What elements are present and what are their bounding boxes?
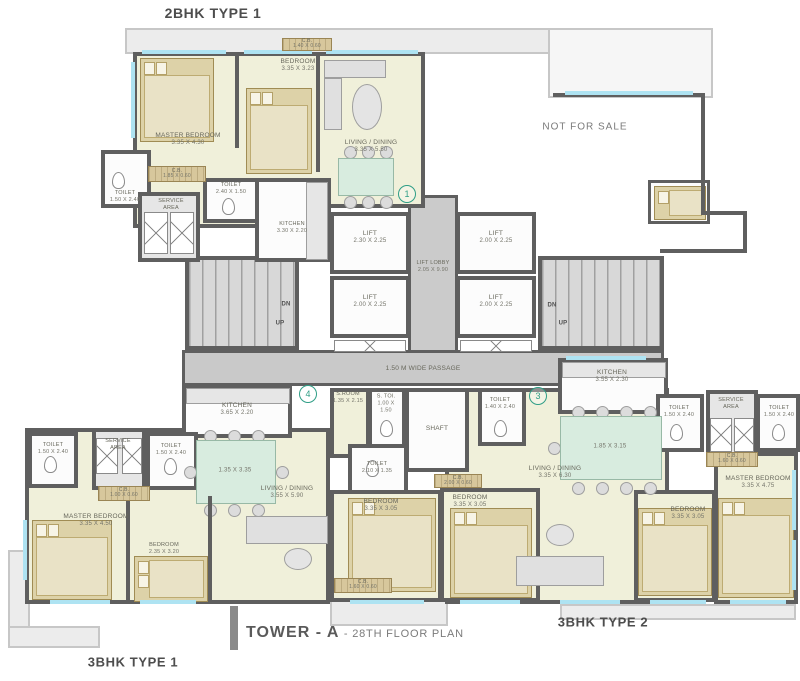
nfs-wall-bottom [660, 249, 745, 253]
sofa [246, 516, 328, 544]
staircase-right [538, 256, 664, 350]
label-u3-kitchen: KITCHEN3.55 X 2.30 [596, 369, 629, 385]
unit-title-3bhk-type1: 3BHK TYPE 1 [88, 655, 178, 670]
coffee-table [352, 84, 382, 130]
room-name: LIVING / DINING [345, 139, 397, 147]
room-name: SERVICE AREA [151, 198, 191, 212]
label-u4-bedroom1: BEDROOM2.35 X 3.20 [149, 542, 179, 556]
room-name: KITCHEN [597, 369, 627, 377]
stairs-direction: DN [547, 302, 556, 310]
room-name: TOILET [161, 443, 181, 450]
room-name: BEDROOM [671, 506, 706, 514]
room-dim: 3.35 X 3.05 [672, 514, 705, 522]
room-name: TOILET [669, 405, 689, 412]
unit-title-2bhk-type1: 2BHK TYPE 1 [165, 5, 262, 21]
label-shaft: SHAFT [426, 425, 448, 433]
plan-footer: TOWER - A - 28TH FLOOR PLAN [246, 624, 464, 642]
unit1-living-divider-wall [316, 52, 320, 172]
deck-not-for-sale [548, 28, 713, 98]
label-u4-toilet-mid: TOILET1.50 X 2.40 [156, 443, 186, 457]
room-dim: 3.35 X 3.05 [365, 506, 398, 514]
room-dim: 1.85 X 0.60 [163, 174, 191, 179]
room-name: LIFT [489, 294, 503, 302]
label-u1-cb-left: C.B.1.85 X 0.60 [163, 169, 191, 180]
room-dim: 1.50 X 2.40 [156, 450, 186, 457]
chair [344, 196, 357, 209]
chair [276, 466, 289, 479]
room-name: LIVING / DINING [529, 465, 581, 473]
unit-number-4: 4 [299, 385, 317, 403]
label-stairs-left-dn: DN [281, 301, 290, 309]
label-u3-cb-mid: C.B.2.00 X 0.60 [444, 476, 472, 487]
sofa [324, 78, 342, 130]
label-u4-living: LIVING / DINING3.55 X 5.90 [261, 485, 313, 501]
lift-pit-hatch-right [460, 340, 532, 352]
wardrobe [710, 418, 732, 452]
label-u1-master-bedroom: MASTER BEDROOM3.35 X 4.30 [155, 132, 220, 148]
room-name: LIFT [489, 230, 503, 238]
chair [228, 504, 241, 517]
room-dim: 3.55 X 2.30 [596, 377, 629, 385]
chair [596, 482, 609, 495]
room-dim: 1.00 X 0.60 [110, 493, 138, 498]
label-u3-living: LIVING / DINING3.35 X 6.30 [529, 465, 581, 481]
window [792, 540, 796, 590]
window [566, 356, 646, 360]
room-name: LIFT [363, 294, 377, 302]
label-stairs-right-up: UP [559, 320, 568, 328]
room-name: LIFT LOBBY [416, 260, 449, 267]
room-dim: 1.40 X 2.40 [485, 404, 515, 411]
footer-wall-stub [230, 606, 238, 650]
chair [380, 196, 393, 209]
label-u3-table-dim: 1.85 X 3.15 [594, 443, 627, 451]
sofa [324, 60, 386, 78]
room-name: BEDROOM [453, 494, 488, 502]
window [460, 600, 520, 604]
room-dim: 3.35 X 5.50 [355, 147, 388, 155]
toilet-wc [380, 420, 393, 437]
unit-title-3bhk-type2: 3BHK TYPE 2 [558, 615, 648, 630]
unit-number-3: 3 [529, 387, 547, 405]
wardrobe [144, 212, 168, 254]
room-name: TOILET [490, 397, 510, 404]
room-dim: 1.50 X 2.40 [764, 412, 794, 419]
window [350, 600, 424, 604]
label-u4-bedroom2: BEDROOM3.35 X 3.05 [364, 498, 399, 514]
window [792, 470, 796, 530]
label-u1-toilet-inner: TOILET2.40 X 1.50 [216, 182, 246, 196]
room-dim: 1.60 X 0.60 [349, 585, 377, 590]
bed [718, 498, 794, 598]
room-name: 1.50 M WIDE PASSAGE [386, 365, 461, 373]
room-dim: 1.00 X 1.50 [371, 401, 401, 415]
label-u1-toilet-left: TOILET1.50 X 2.40 [110, 190, 140, 204]
label-u4-kitchen: KITCHEN3.65 X 2.20 [221, 402, 254, 418]
room-dim: 3.35 X 4.75 [742, 483, 775, 491]
room-dim: 2.00 X 2.25 [354, 302, 387, 310]
label-u3-bedroom1: BEDROOM3.35 X 3.05 [453, 494, 488, 510]
label-u1-cb-top: C.B.1.40 X 0.60 [293, 39, 321, 50]
toilet-wc [44, 456, 57, 473]
stairs-direction: UP [276, 320, 285, 328]
toilet-wc [164, 458, 177, 475]
wardrobe [734, 418, 754, 452]
room-name: MASTER BEDROOM [155, 132, 220, 140]
window [326, 50, 418, 54]
room-name: TOILET [43, 442, 63, 449]
label-lift-tl: LIFT2.30 X 2.25 [354, 230, 387, 246]
bed [654, 186, 706, 220]
room-dim: 2.35 X 3.20 [149, 549, 179, 556]
window [560, 600, 620, 604]
room-name: KITCHEN [279, 221, 305, 228]
label-u4-service-area: SERVICE AREA [98, 438, 138, 452]
room-name: KITCHEN [222, 402, 252, 410]
floor-name: - 28TH FLOOR PLAN [344, 628, 464, 640]
window [50, 600, 110, 604]
window [565, 91, 693, 95]
room-dim: 1.50 X 2.40 [110, 197, 140, 204]
room-name: MASTER BEDROOM [725, 475, 790, 483]
dining-table [338, 158, 394, 196]
room-dim: 2.00 X 2.25 [480, 238, 513, 246]
room-dim: 2.40 X 1.50 [216, 189, 246, 196]
label-u3-bedroom2: BEDROOM3.35 X 3.05 [671, 506, 706, 522]
side-table [284, 548, 312, 570]
unit3-toilet-right1 [656, 394, 704, 452]
room-dim: 3.35 X 6.30 [539, 473, 572, 481]
lift-pit-hatch-left [334, 340, 406, 352]
window [730, 600, 786, 604]
chair [572, 482, 585, 495]
room-name: TOILET [115, 190, 135, 197]
room-dim: 2.05 X 9.90 [418, 267, 448, 274]
bed [32, 520, 112, 600]
room-dim: 3.55 X 5.90 [271, 493, 304, 501]
table-dim: 1.35 X 3.35 [219, 467, 252, 475]
nfs-wall-jog-h [701, 211, 747, 215]
toilet-wc [670, 424, 683, 441]
label-u4-servant-room: S.ROOM1.35 X 2.15 [333, 391, 363, 405]
room-name: TOILET [769, 405, 789, 412]
window [140, 600, 196, 604]
label-u1-bedroom: BEDROOM3.35 X 3.23 [281, 58, 316, 74]
label-u3-toilet-entry: TOILET1.40 X 2.40 [485, 397, 515, 411]
room-name: LIFT [363, 230, 377, 238]
chair [644, 482, 657, 495]
deck-bottom-left-h [8, 626, 100, 648]
nfs-wall-jog-v [743, 211, 747, 253]
window [650, 600, 706, 604]
window [23, 520, 27, 580]
room-dim: 1.50 X 2.40 [664, 412, 694, 419]
room-name: BEDROOM [281, 58, 316, 66]
label-passage: 1.50 M WIDE PASSAGE [386, 365, 461, 373]
chair [362, 196, 375, 209]
unit-number-1: 1 [398, 185, 416, 203]
bed [140, 58, 214, 142]
room-name: BEDROOM [364, 498, 399, 506]
label-u4-toilet-left: TOILET1.50 X 2.40 [38, 442, 68, 456]
room-dim: 3.35 X 3.05 [454, 502, 487, 510]
room-name: MASTER BEDROOM [63, 513, 128, 521]
room-dim: 3.35 X 4.50 [80, 521, 113, 529]
room-name: S. TOI. [377, 394, 396, 401]
not-for-sale-label: NOT FOR SALE [542, 122, 627, 133]
room-name: S.ROOM [336, 391, 360, 398]
sofa [516, 556, 604, 586]
tower-name: TOWER - A [246, 624, 339, 641]
nfs-wall-right [701, 93, 705, 215]
window [131, 62, 135, 138]
room-name: TOILET [367, 461, 387, 468]
room-dim: 3.35 X 4.30 [172, 140, 205, 148]
label-lift-bl: LIFT2.00 X 2.25 [354, 294, 387, 310]
room-dim: 3.65 X 2.20 [221, 410, 254, 418]
unit4-bedroom-divider-wall [126, 496, 130, 602]
chair [620, 482, 633, 495]
toilet-wc [112, 172, 125, 189]
wardrobe [170, 212, 194, 254]
toilet-wc [222, 198, 235, 215]
label-u3-toilet-r2: TOILET1.50 X 2.40 [764, 405, 794, 419]
room-dim: 2.30 X 2.25 [354, 238, 387, 246]
bed [246, 88, 312, 174]
unit3-toilet-right2 [756, 394, 800, 452]
label-u4-master-bedroom: MASTER BEDROOM3.35 X 4.50 [63, 513, 128, 529]
room-dim: 1.35 X 2.15 [333, 398, 363, 405]
label-u4-table-dim: 1.35 X 3.35 [219, 467, 252, 475]
label-u1-kitchen: KITCHEN3.30 X 2.20 [272, 221, 312, 235]
label-lift-tr: LIFT2.00 X 2.25 [480, 230, 513, 246]
label-lift-br: LIFT2.00 X 2.25 [480, 294, 513, 310]
label-u1-service-area: SERVICE AREA [151, 198, 191, 212]
label-u3-service-area: SERVICE AREA [711, 397, 751, 411]
room-dim: 3.35 X 3.23 [282, 66, 315, 74]
label-u3-master-bedroom: MASTER BEDROOM3.35 X 4.75 [725, 475, 790, 491]
table-dim: 1.85 X 3.15 [594, 443, 627, 451]
toilet-wc [772, 424, 785, 441]
room-name: SERVICE AREA [98, 438, 138, 452]
label-u1-living: LIVING / DINING3.35 X 5.50 [345, 139, 397, 155]
stairs-direction: DN [281, 301, 290, 309]
room-dim: 1.50 X 2.40 [38, 449, 68, 456]
bed [134, 556, 208, 602]
unit4-living-divider-wall [208, 496, 212, 602]
label-stairs-right-dn: DN [547, 302, 556, 310]
floor-plan-canvas: 2BHK TYPE 1 NOT FOR SALE 3BHK TYPE 1 3BH… [0, 0, 800, 681]
label-u4-toilet-inner: TOILET2.10 X 1.35 [362, 461, 392, 475]
label-u3-cb-right: C.B.1.60 X 0.60 [718, 454, 746, 465]
room-dim: 2.10 X 1.35 [362, 468, 392, 475]
label-u4-servant-toilet: S. TOI.1.00 X 1.50 [371, 394, 401, 415]
room-name: SHAFT [426, 425, 448, 433]
label-u4-cb-service: C.B.1.00 X 0.60 [110, 488, 138, 499]
stairs-direction: UP [559, 320, 568, 328]
room-name: TOILET [221, 182, 241, 189]
label-lift-lobby: LIFT LOBBY2.05 X 9.90 [416, 260, 449, 274]
window [142, 50, 226, 54]
room-name: LIVING / DINING [261, 485, 313, 493]
label-u4-cb-bottom: C.B.1.60 X 0.60 [349, 580, 377, 591]
unit1-bedroom-divider-wall [235, 52, 239, 148]
room-name: SERVICE AREA [711, 397, 751, 411]
room-dim: 2.00 X 2.25 [480, 302, 513, 310]
label-u3-toilet-r1: TOILET1.50 X 2.40 [664, 405, 694, 419]
room-dim: 1.40 X 0.60 [293, 44, 321, 49]
toilet-wc [494, 420, 507, 437]
room-dim: 3.30 X 2.20 [277, 228, 307, 235]
side-table [546, 524, 574, 546]
label-stairs-left-up: UP [276, 320, 285, 328]
room-name: BEDROOM [149, 542, 179, 549]
room-dim: 1.60 X 0.60 [718, 459, 746, 464]
room-dim: 2.00 X 0.60 [444, 481, 472, 486]
